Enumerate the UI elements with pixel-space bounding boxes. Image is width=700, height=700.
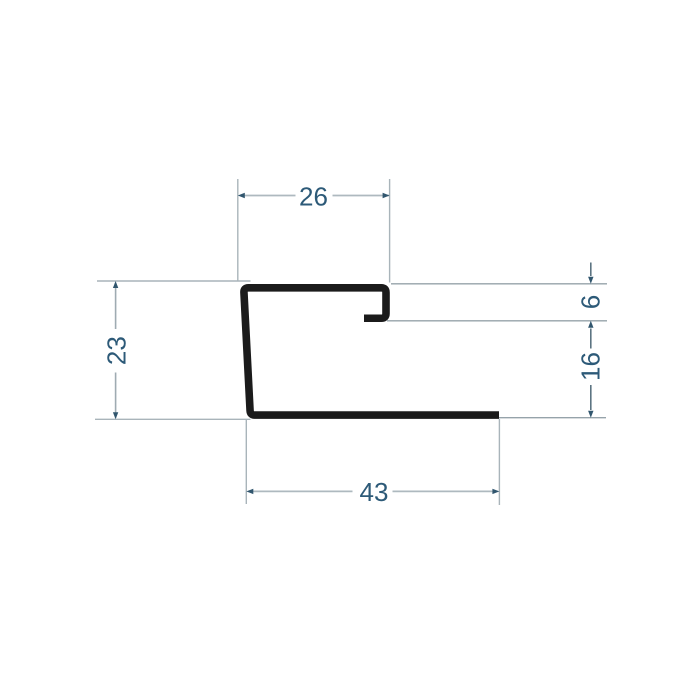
svg-text:26: 26 (299, 182, 328, 212)
svg-text:6: 6 (576, 295, 606, 309)
svg-text:43: 43 (360, 477, 389, 507)
svg-text:16: 16 (575, 352, 605, 381)
svg-text:23: 23 (101, 336, 131, 365)
